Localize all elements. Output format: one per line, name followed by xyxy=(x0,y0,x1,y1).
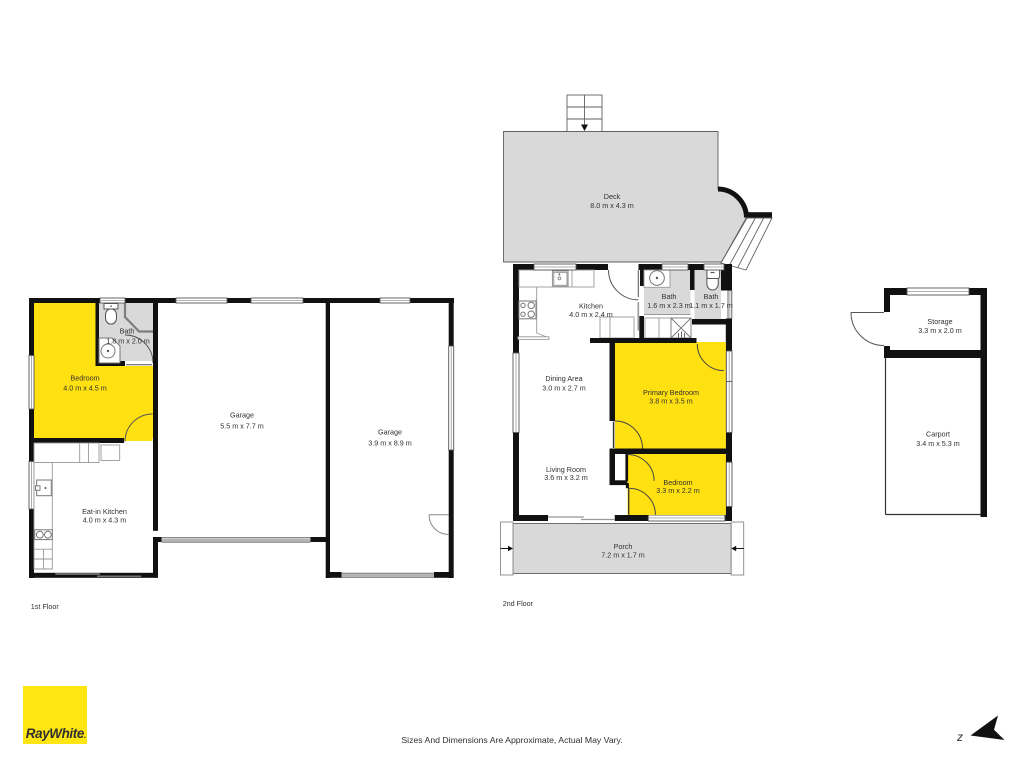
svg-text:Bedroom: Bedroom xyxy=(70,374,99,383)
svg-text:3.0 m x 2.7 m: 3.0 m x 2.7 m xyxy=(542,383,586,392)
svg-text:Carport: Carport xyxy=(926,430,950,439)
svg-text:Bath: Bath xyxy=(662,292,677,301)
svg-text:4.0 m x 4.5 m: 4.0 m x 4.5 m xyxy=(63,384,107,393)
svg-text:3.3 m x 2.2 m: 3.3 m x 2.2 m xyxy=(656,486,700,495)
svg-text:5.5 m x 7.7 m: 5.5 m x 7.7 m xyxy=(220,422,264,431)
svg-text:3.8 m x 3.5 m: 3.8 m x 3.5 m xyxy=(649,397,693,406)
svg-text:Dining Area: Dining Area xyxy=(545,374,582,383)
svg-text:1.6 m x 2.3 m: 1.6 m x 2.3 m xyxy=(647,301,691,310)
svg-text:Bath: Bath xyxy=(704,292,719,301)
svg-text:RayWhite.: RayWhite. xyxy=(26,726,86,741)
svg-text:Garage: Garage xyxy=(378,428,402,437)
svg-text:3.4 m x 5.3 m: 3.4 m x 5.3 m xyxy=(916,439,960,448)
svg-text:3.9 m x 8.9 m: 3.9 m x 8.9 m xyxy=(368,439,412,448)
svg-text:z: z xyxy=(956,730,963,744)
svg-text:2nd Floor: 2nd Floor xyxy=(503,599,534,608)
svg-text:4.0 m x 2.4 m: 4.0 m x 2.4 m xyxy=(569,310,613,319)
svg-text:1.8 m x 2.0 m: 1.8 m x 2.0 m xyxy=(106,337,150,346)
svg-text:Garage: Garage xyxy=(230,411,254,420)
svg-text:7.2 m x 1.7 m: 7.2 m x 1.7 m xyxy=(601,551,645,560)
svg-text:Bath: Bath xyxy=(120,327,135,336)
svg-text:Storage: Storage xyxy=(927,317,952,326)
svg-text:3.6 m x 3.2 m: 3.6 m x 3.2 m xyxy=(544,473,588,482)
svg-text:4.0 m x 4.3 m: 4.0 m x 4.3 m xyxy=(83,516,127,525)
svg-text:Deck: Deck xyxy=(604,192,621,201)
svg-text:1.1 m x 1.7 m: 1.1 m x 1.7 m xyxy=(689,301,733,310)
svg-text:Sizes And Dimensions Are Appro: Sizes And Dimensions Are Approximate, Ac… xyxy=(401,735,622,745)
svg-text:3.3 m x 2.0 m: 3.3 m x 2.0 m xyxy=(918,326,962,335)
svg-text:1st Floor: 1st Floor xyxy=(31,602,60,611)
svg-text:8.0 m x 4.3 m: 8.0 m x 4.3 m xyxy=(590,201,634,210)
